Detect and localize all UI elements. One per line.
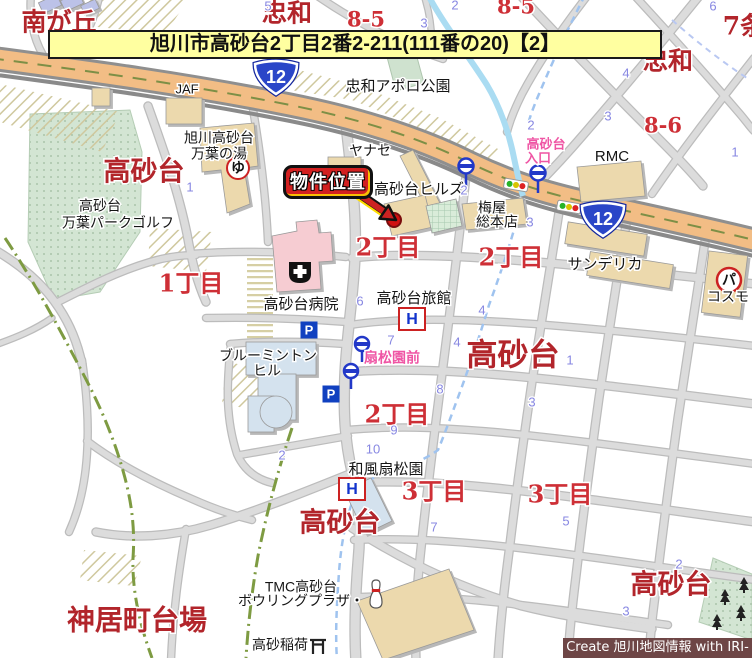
map-label: 6 [709,0,716,13]
map-label: 神居町台場 [67,604,207,637]
map-label: 3丁目 [402,477,467,506]
svg-text:H: H [406,311,418,328]
map-label: 旭川高砂台 [184,130,254,146]
map-label: ボウリングプラザ・ [238,593,364,609]
map-label: 1 [566,352,573,367]
map-label: 高砂台 [104,156,185,188]
road [87,441,252,520]
map-label: 5 [562,513,569,528]
map-label: 10 [366,441,380,456]
parking-icon: P [301,322,318,339]
map-label: 2 [460,182,467,197]
map-label: 高砂台ヒルズ [374,181,464,198]
map-label: サンデリカ [567,255,642,273]
map-label: 2 [278,447,285,462]
map-viewport: ゆ パ H H P P [0,0,752,658]
map-label: 高砂台病院 [263,295,338,313]
map-label: 忠和アポロ公園 [345,78,450,95]
map-label: 高砂稲荷 [252,637,308,653]
map-label: 3 [528,394,535,409]
svg-text:P: P [327,386,336,401]
map-label: 3 [622,603,629,618]
map-label: 4 [478,302,485,317]
map-label: 8-5 [347,7,385,32]
buildings [38,0,747,658]
map-label: 8 [436,381,443,396]
boundary-olive [5,238,152,658]
map-label: 3丁目 [528,480,593,509]
bloomington-dome [260,396,292,428]
map-label: 高砂台旅館 [376,290,451,307]
hospital-icon [289,262,311,283]
map-label: 1 [186,179,193,194]
address-banner: 旭川市高砂台2丁目2番2-211(111番の20)【2】 [48,30,662,59]
map-label: 2丁目 [479,243,544,272]
map-label: 高砂台 [79,198,121,214]
road [69,360,88,532]
jaf-building [166,98,202,124]
map-label: 6 [356,293,363,308]
road [0,318,52,345]
road [87,441,252,520]
map-label: 2 [451,0,458,12]
map-label: 2 [527,117,534,132]
map-label: 3 [604,108,611,123]
map-label: 8-5 [497,0,535,19]
map-label: 高砂台 [467,338,560,374]
map-canvas[interactable]: ゆ パ H H P P [0,0,752,658]
map-label: 3 [420,15,427,30]
svg-text:12: 12 [266,67,286,87]
svg-text:H: H [346,481,358,498]
building [92,88,110,106]
torii-shrine-icon [310,640,326,654]
map-credit: Create 旭川地図情報 with IRI-GO [563,638,752,658]
map-label: 万葉の湯 [191,146,247,162]
map-label: 万葉パークゴルフ [62,215,174,231]
map-label: ブルーミントン [219,348,317,364]
map-label: 総本店 [476,214,518,230]
property-location-callout: 物件位置 [283,165,373,199]
map-label: 8-6 [644,113,682,138]
map-label: ヒル [253,363,281,379]
map-label: 高砂台 [631,569,712,601]
map-label: 和風扇松園 [348,461,423,478]
map-label: 9 [390,422,397,437]
map-label: 5 [264,0,271,13]
road [346,427,752,464]
road [240,436,348,455]
svg-text:12: 12 [593,209,613,229]
map-label: 扇松園前 [364,350,420,366]
map-label: JAF [175,81,198,96]
bowling-pin-icon [370,580,382,608]
rmc-building [577,161,645,202]
map-label: 4 [622,65,629,80]
map-label: 1 [731,144,738,159]
map-label: 7条 [723,12,752,41]
svg-text:パ: パ [722,272,736,288]
map-label: 2 [675,556,682,571]
parking-icon: P [323,386,340,403]
boundary-olive [246,428,292,658]
svg-text:ゆ: ゆ [231,160,245,176]
map-label: ヤナセ [349,143,391,159]
map-label: 1丁目 [159,269,224,298]
hotel-icon: H [399,308,425,330]
map-label: 7 [430,519,437,534]
hotel-icon: H [339,478,365,500]
map-label: 入口 [525,150,551,165]
map-label: 高砂台 [300,507,381,539]
svg-text:P: P [305,322,314,337]
map-label: 4 [453,334,460,349]
map-label: 高砂台 [526,136,565,151]
map-label: 7 [387,332,394,347]
map-label: 3 [526,214,533,229]
map-label: 2丁目 [356,233,421,262]
map-label: コスモ [707,289,749,305]
map-label: RMC [595,148,629,165]
